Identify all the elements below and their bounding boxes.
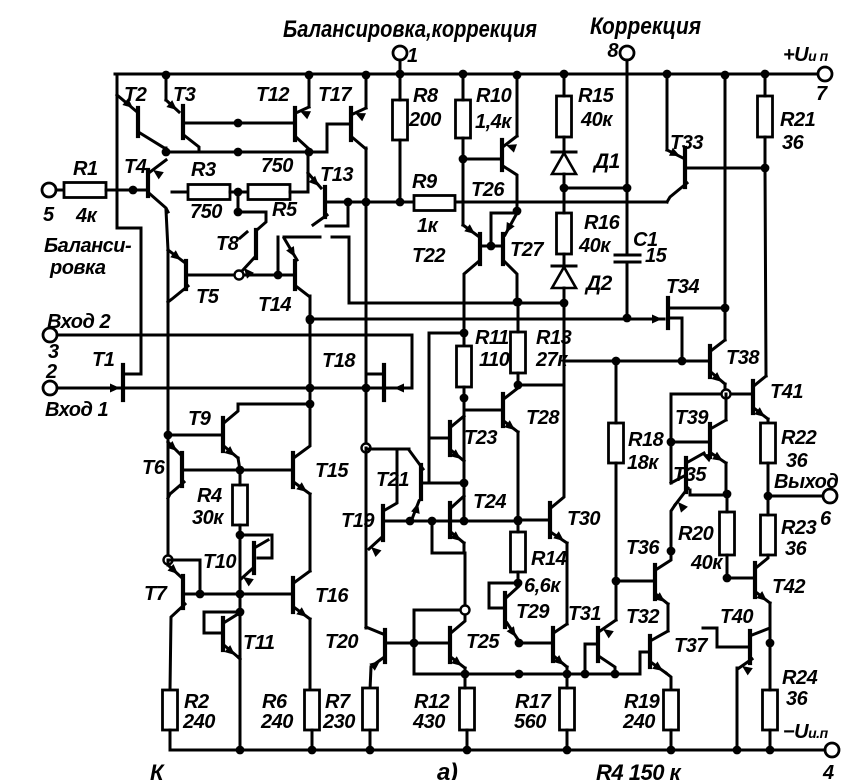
svg-text:Вход 1: Вход 1 bbox=[45, 399, 108, 421]
svg-text:1к: 1к bbox=[417, 215, 439, 237]
svg-text:Баланси-: Баланси- bbox=[44, 235, 132, 257]
svg-text:Т37: Т37 bbox=[674, 635, 708, 657]
svg-text:R8: R8 bbox=[413, 85, 439, 107]
svg-text:Т31: Т31 bbox=[568, 603, 601, 625]
svg-text:Т27: Т27 bbox=[510, 239, 544, 261]
svg-text:4к: 4к bbox=[75, 205, 98, 227]
svg-text:Т20: Т20 bbox=[325, 631, 358, 653]
svg-text:36: 36 bbox=[785, 538, 808, 560]
svg-text:R23: R23 bbox=[781, 517, 817, 539]
svg-text:240: 240 bbox=[182, 711, 215, 733]
svg-text:230: 230 bbox=[322, 711, 355, 733]
svg-text:Т12: Т12 bbox=[256, 84, 289, 106]
svg-text:Т14: Т14 bbox=[258, 294, 291, 316]
svg-text:Т35: Т35 bbox=[673, 464, 707, 486]
svg-text:R22: R22 bbox=[781, 427, 817, 449]
svg-text:Т13: Т13 bbox=[320, 164, 353, 186]
svg-text:R3: R3 bbox=[191, 159, 216, 181]
svg-text:R18: R18 bbox=[628, 429, 665, 451]
svg-text:1: 1 bbox=[407, 45, 418, 67]
svg-text:Коррекция: Коррекция bbox=[590, 13, 701, 40]
svg-text:−Uи.п: −Uи.п bbox=[783, 721, 829, 743]
svg-text:R4 150 к: R4 150 к bbox=[596, 760, 683, 780]
svg-text:750: 750 bbox=[261, 155, 293, 177]
svg-text:36: 36 bbox=[786, 688, 809, 710]
svg-text:750: 750 bbox=[190, 201, 222, 223]
svg-text:7: 7 bbox=[816, 83, 828, 105]
svg-text:15: 15 bbox=[645, 245, 668, 267]
svg-text:R19: R19 bbox=[624, 691, 661, 713]
svg-text:240: 240 bbox=[260, 711, 293, 733]
svg-text:R7: R7 bbox=[325, 691, 351, 713]
svg-text:8: 8 bbox=[607, 40, 619, 62]
svg-text:40к: 40к bbox=[578, 235, 611, 257]
svg-text:Т8: Т8 bbox=[216, 233, 240, 255]
svg-text:R12: R12 bbox=[414, 691, 450, 713]
svg-text:R2: R2 bbox=[184, 691, 209, 713]
svg-text:Т18: Т18 bbox=[322, 350, 356, 372]
svg-text:Т26: Т26 bbox=[471, 179, 505, 201]
svg-text:R4: R4 bbox=[197, 485, 222, 507]
svg-text:Балансировка,коррекция: Балансировка,коррекция bbox=[283, 16, 537, 43]
svg-text:R11: R11 bbox=[475, 327, 509, 349]
svg-text:R24: R24 bbox=[782, 667, 818, 689]
svg-text:Т15: Т15 bbox=[315, 460, 349, 482]
svg-text:200: 200 bbox=[408, 109, 441, 131]
svg-text:Д2: Д2 bbox=[584, 272, 613, 295]
svg-text:R14: R14 bbox=[531, 548, 567, 570]
svg-text:R5: R5 bbox=[272, 199, 298, 221]
svg-text:4: 4 bbox=[822, 762, 834, 780]
svg-text:Т7: Т7 bbox=[144, 583, 168, 605]
svg-text:30к: 30к bbox=[192, 507, 224, 529]
svg-text:Т41: Т41 bbox=[770, 381, 803, 403]
svg-text:36: 36 bbox=[782, 132, 805, 154]
svg-text:2: 2 bbox=[45, 361, 57, 383]
svg-text:R16: R16 bbox=[584, 212, 621, 234]
svg-text:Т24: Т24 bbox=[473, 491, 506, 513]
svg-text:R6: R6 bbox=[262, 691, 288, 713]
svg-text:Т40: Т40 bbox=[720, 606, 753, 628]
svg-text:Т9: Т9 bbox=[188, 408, 212, 430]
svg-text:К: К bbox=[150, 760, 165, 780]
svg-text:430: 430 bbox=[412, 711, 445, 733]
svg-text:Т36: Т36 bbox=[626, 537, 660, 559]
svg-text:Т22: Т22 bbox=[412, 245, 445, 267]
svg-text:Т4: Т4 bbox=[124, 156, 147, 178]
svg-text:Т30: Т30 bbox=[567, 508, 600, 530]
svg-text:Т5: Т5 bbox=[196, 286, 220, 308]
svg-text:560: 560 bbox=[514, 711, 546, 733]
svg-text:R13: R13 bbox=[536, 327, 572, 349]
svg-text:Вход 2: Вход 2 bbox=[47, 311, 110, 333]
svg-text:Т11: Т11 bbox=[243, 632, 275, 654]
svg-text:R9: R9 bbox=[412, 171, 438, 193]
svg-text:1,4к: 1,4к bbox=[475, 111, 512, 133]
svg-text:R15: R15 bbox=[578, 85, 615, 107]
svg-text:R20: R20 bbox=[678, 523, 714, 545]
svg-text:240: 240 bbox=[622, 711, 655, 733]
svg-text:а): а) bbox=[437, 759, 458, 780]
svg-text:R21: R21 bbox=[780, 109, 816, 131]
svg-text:6: 6 bbox=[820, 508, 832, 530]
svg-text:Т6: Т6 bbox=[142, 457, 166, 479]
svg-text:40к: 40к bbox=[580, 109, 613, 131]
svg-text:Т25: Т25 bbox=[466, 631, 500, 653]
svg-text:Т29: Т29 bbox=[516, 601, 550, 623]
svg-text:Т39: Т39 bbox=[675, 407, 709, 429]
svg-text:Т16: Т16 bbox=[315, 585, 349, 607]
svg-text:110: 110 bbox=[479, 349, 510, 371]
svg-text:Т10: Т10 bbox=[203, 551, 236, 573]
svg-text:Выход: Выход bbox=[774, 471, 838, 493]
svg-text:Д1: Д1 bbox=[592, 150, 620, 173]
svg-text:5: 5 bbox=[43, 204, 55, 226]
svg-text:6,6к: 6,6к bbox=[524, 575, 561, 597]
svg-text:40к: 40к bbox=[690, 552, 723, 574]
svg-text:Т17: Т17 bbox=[318, 84, 352, 106]
svg-text:18к: 18к bbox=[627, 452, 659, 474]
svg-text:ровка: ровка bbox=[49, 257, 106, 279]
svg-text:Т32: Т32 bbox=[626, 606, 659, 628]
svg-text:Т1: Т1 bbox=[92, 349, 115, 371]
svg-text:Т3: Т3 bbox=[173, 84, 196, 106]
svg-text:R10: R10 bbox=[476, 85, 512, 107]
svg-text:Т21: Т21 bbox=[376, 469, 409, 491]
svg-text:3: 3 bbox=[48, 341, 59, 363]
svg-text:R1: R1 bbox=[73, 158, 98, 180]
svg-text:Т42: Т42 bbox=[772, 576, 805, 598]
svg-text:Т23: Т23 bbox=[464, 427, 497, 449]
svg-text:R17: R17 bbox=[515, 691, 552, 713]
svg-text:Т34: Т34 bbox=[666, 276, 699, 298]
svg-text:+Uи п: +Uи п bbox=[783, 44, 829, 66]
svg-text:Т38: Т38 bbox=[726, 347, 760, 369]
svg-text:Т28: Т28 bbox=[526, 407, 560, 429]
svg-text:Т19: Т19 bbox=[341, 510, 375, 532]
svg-text:36: 36 bbox=[786, 450, 809, 472]
